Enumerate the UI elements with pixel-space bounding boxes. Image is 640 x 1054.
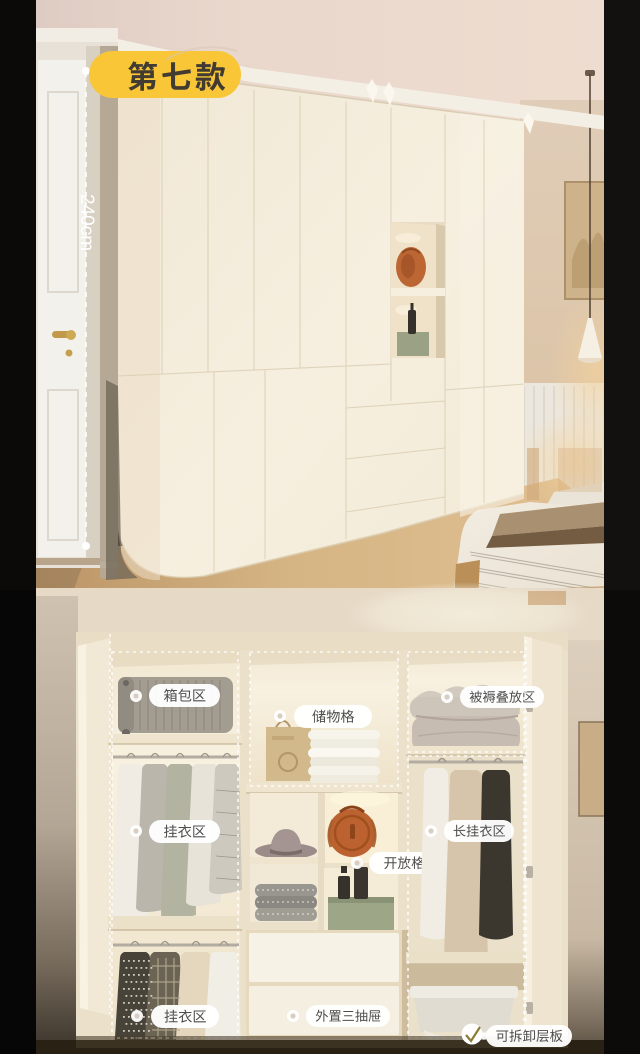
svg-text:240cm: 240cm bbox=[76, 194, 97, 251]
